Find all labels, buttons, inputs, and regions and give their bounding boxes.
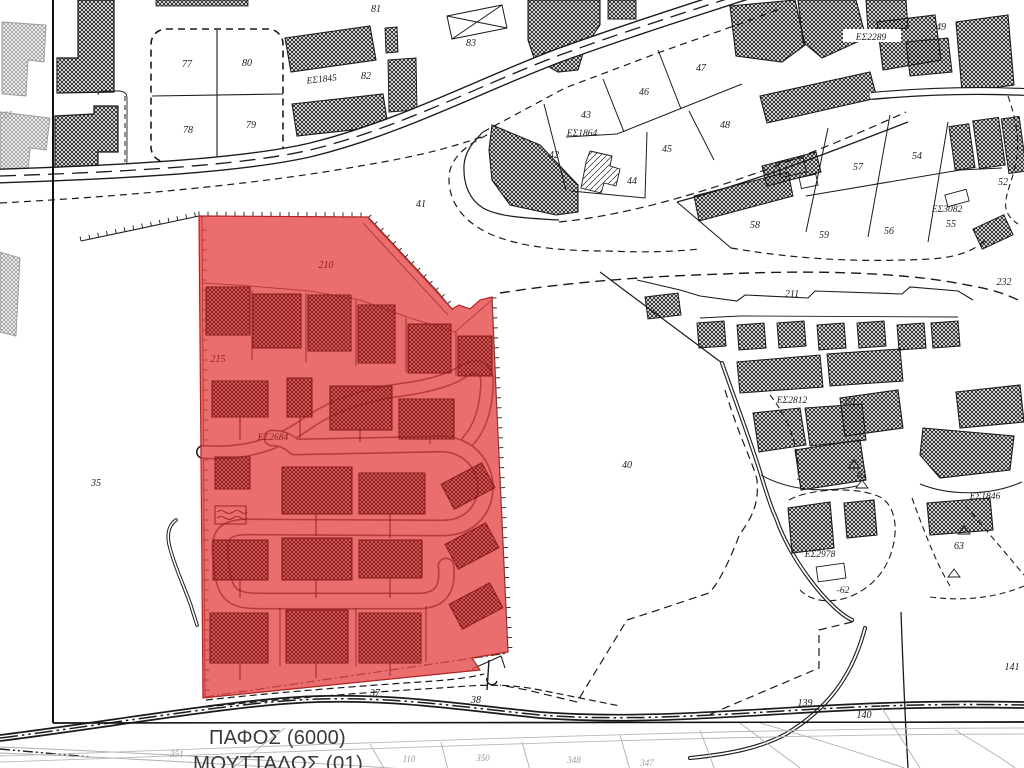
- svg-text:78: 78: [183, 125, 193, 136]
- svg-text:46: 46: [639, 87, 649, 98]
- svg-text:49: 49: [936, 22, 946, 33]
- svg-text:215: 215: [211, 354, 226, 365]
- svg-text:48: 48: [720, 120, 730, 131]
- svg-text:83: 83: [466, 38, 476, 49]
- svg-text:80: 80: [242, 58, 252, 69]
- svg-text:ΕΣ1864: ΕΣ1864: [566, 129, 598, 139]
- svg-text:77: 77: [182, 59, 193, 70]
- svg-text:232: 232: [997, 277, 1012, 288]
- svg-text:ΕΣ2684: ΕΣ2684: [257, 433, 289, 443]
- svg-text:55: 55: [4, 110, 14, 120]
- svg-text:55: 55: [946, 219, 956, 230]
- svg-text:59: 59: [819, 230, 829, 241]
- svg-text:42: 42: [549, 150, 559, 161]
- svg-text:ΠΑΦΟΣ (6000): ΠΑΦΟΣ (6000): [209, 727, 346, 749]
- svg-text:52: 52: [998, 177, 1008, 188]
- svg-text:211: 211: [785, 289, 799, 300]
- svg-text:47: 47: [696, 63, 707, 74]
- svg-text:ΕΣ2289: ΕΣ2289: [855, 33, 887, 43]
- svg-text:45: 45: [662, 144, 672, 155]
- svg-text:348: 348: [566, 755, 581, 765]
- svg-text:56: 56: [884, 226, 894, 237]
- svg-text:41: 41: [416, 199, 426, 210]
- svg-text:-62: -62: [837, 586, 850, 596]
- svg-text:347: 347: [639, 758, 654, 768]
- svg-text:43: 43: [581, 110, 591, 121]
- svg-text:210: 210: [319, 260, 334, 271]
- svg-text:110: 110: [403, 754, 416, 764]
- svg-text:ΜΟΥΤΤΑΛΟΣ (01): ΜΟΥΤΤΑΛΟΣ (01): [193, 752, 363, 768]
- svg-text:81: 81: [371, 4, 381, 15]
- svg-text:40: 40: [622, 460, 632, 471]
- svg-text:141: 141: [1005, 662, 1020, 673]
- svg-text:ΕΣ2812: ΕΣ2812: [776, 396, 808, 406]
- svg-text:58: 58: [750, 220, 760, 231]
- svg-text:54: 54: [912, 151, 922, 162]
- svg-text:79: 79: [246, 120, 256, 131]
- svg-text:ΕΣ2978: ΕΣ2978: [804, 550, 836, 560]
- svg-text:35: 35: [90, 478, 101, 489]
- svg-text:350: 350: [475, 753, 490, 763]
- svg-text:44: 44: [627, 176, 637, 187]
- svg-text:ΕΣ3082: ΕΣ3082: [931, 205, 963, 215]
- svg-text:351: 351: [169, 749, 184, 759]
- svg-text:63: 63: [954, 541, 964, 552]
- svg-text:82: 82: [361, 71, 371, 82]
- svg-text:140: 140: [857, 710, 872, 721]
- svg-text:57: 57: [853, 162, 864, 173]
